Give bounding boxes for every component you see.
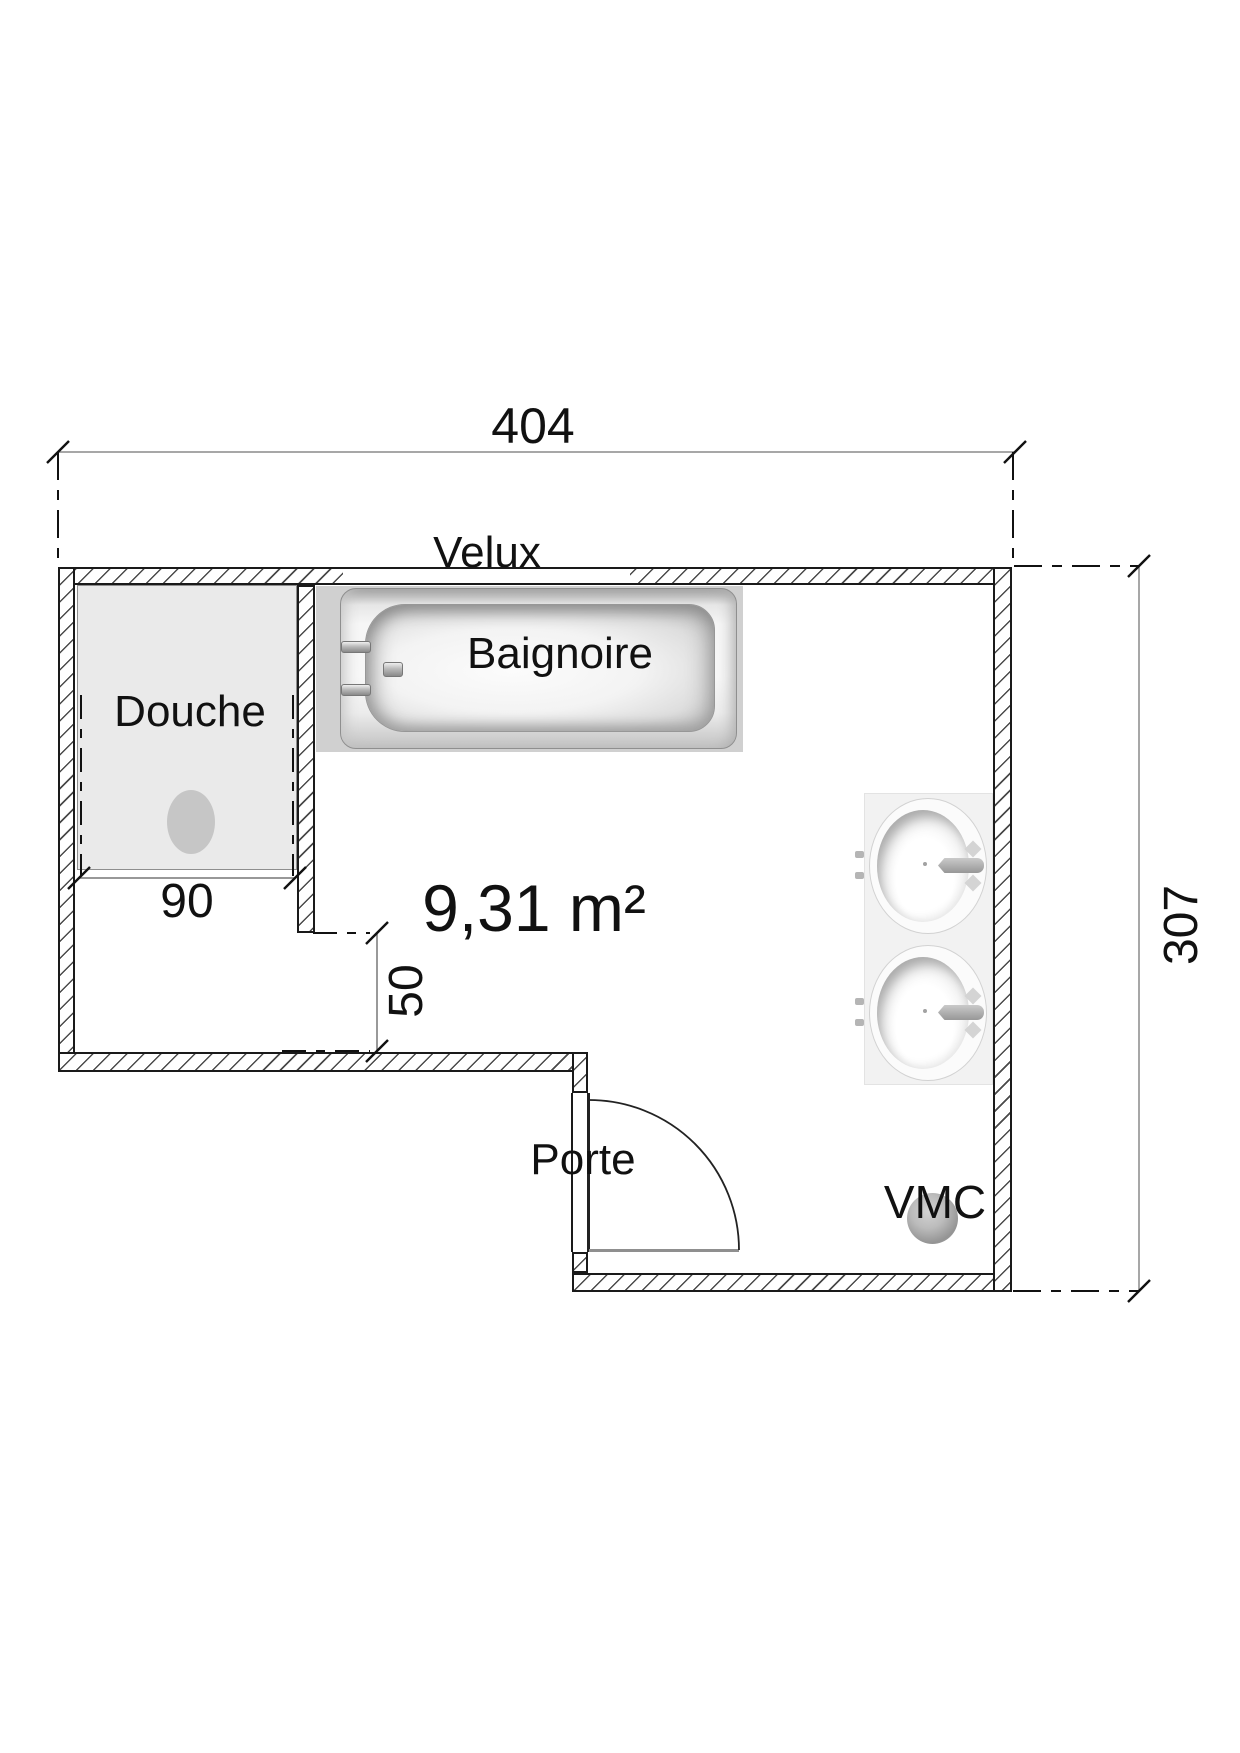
wall-bottom-left	[58, 1052, 588, 1072]
bathtub-faucet-icon	[341, 684, 371, 696]
bathtub-faucet-icon	[341, 641, 371, 653]
bathtub-label: Baignoire	[467, 632, 653, 676]
door-leaf-open	[589, 1249, 739, 1252]
shower-label: Douche	[114, 690, 266, 734]
tick	[1128, 555, 1150, 577]
valve-icon	[855, 1019, 864, 1026]
valve-icon	[855, 872, 864, 879]
door-label: Porte	[530, 1138, 635, 1182]
wall-door-jamb-bottom	[572, 1252, 588, 1273]
wall-door-jamb-top	[572, 1052, 588, 1093]
vent-label: VMC	[884, 1179, 986, 1225]
skylight-label: Velux	[433, 531, 541, 575]
tick	[47, 441, 69, 463]
area-label: 9,31 m²	[422, 875, 646, 941]
valve-icon	[855, 998, 864, 1005]
bathroom-floorplan: 404 Velux Baignoire Douche 90 9,31 m² 50…	[0, 0, 1240, 1753]
valve-icon	[855, 851, 864, 858]
bathtub-drain-icon	[383, 662, 403, 677]
sink-faucet-icon	[938, 1005, 984, 1020]
dimension-label-width: 404	[491, 401, 574, 451]
shower-drain-icon	[167, 790, 215, 854]
sink-drain-icon	[923, 1009, 927, 1013]
dimension-label-shower: 90	[160, 878, 213, 926]
sink-faucet-icon	[938, 858, 984, 873]
dimension-label-height: 307	[1158, 885, 1206, 965]
sink-drain-icon	[923, 862, 927, 866]
wall-left	[58, 567, 75, 1072]
dimension-label-passage: 50	[383, 964, 431, 1017]
tick	[1004, 441, 1026, 463]
wall-bottom-right	[572, 1273, 1012, 1292]
tick	[1128, 1280, 1150, 1302]
wall-shower-partition	[297, 585, 315, 933]
wall-right	[993, 567, 1012, 1292]
tick	[366, 922, 388, 944]
